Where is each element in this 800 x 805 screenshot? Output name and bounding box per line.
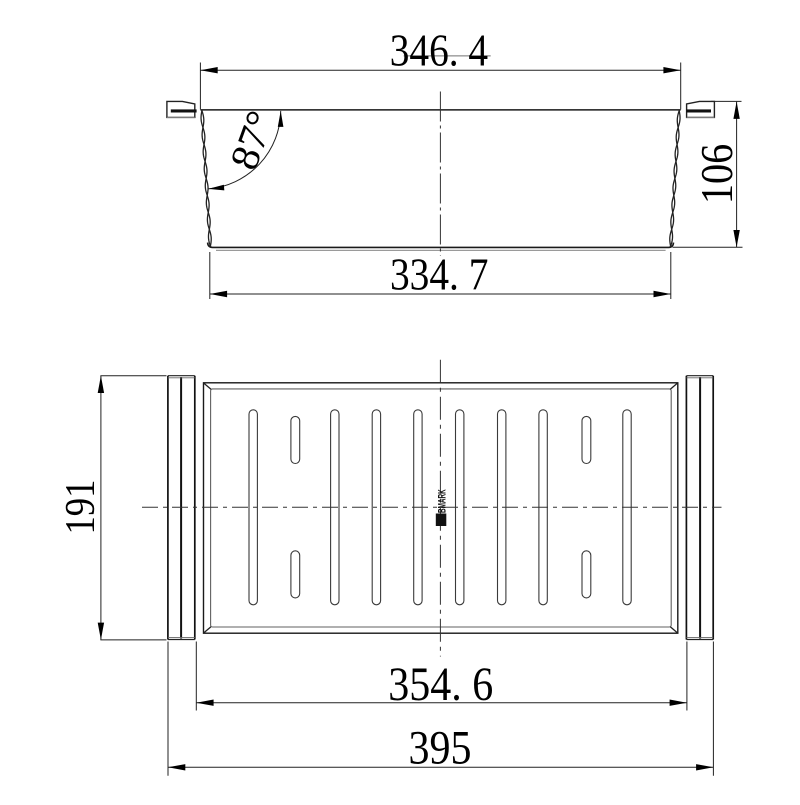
svg-text:191: 191 bbox=[57, 479, 104, 534]
svg-text:BMARK: BMARK bbox=[436, 489, 448, 513]
svg-text:334. 7: 334. 7 bbox=[390, 250, 488, 300]
svg-text:395: 395 bbox=[409, 721, 472, 774]
svg-text:106: 106 bbox=[692, 144, 743, 204]
svg-text:346. 4: 346. 4 bbox=[390, 26, 488, 76]
svg-text:354. 6: 354. 6 bbox=[388, 658, 493, 711]
